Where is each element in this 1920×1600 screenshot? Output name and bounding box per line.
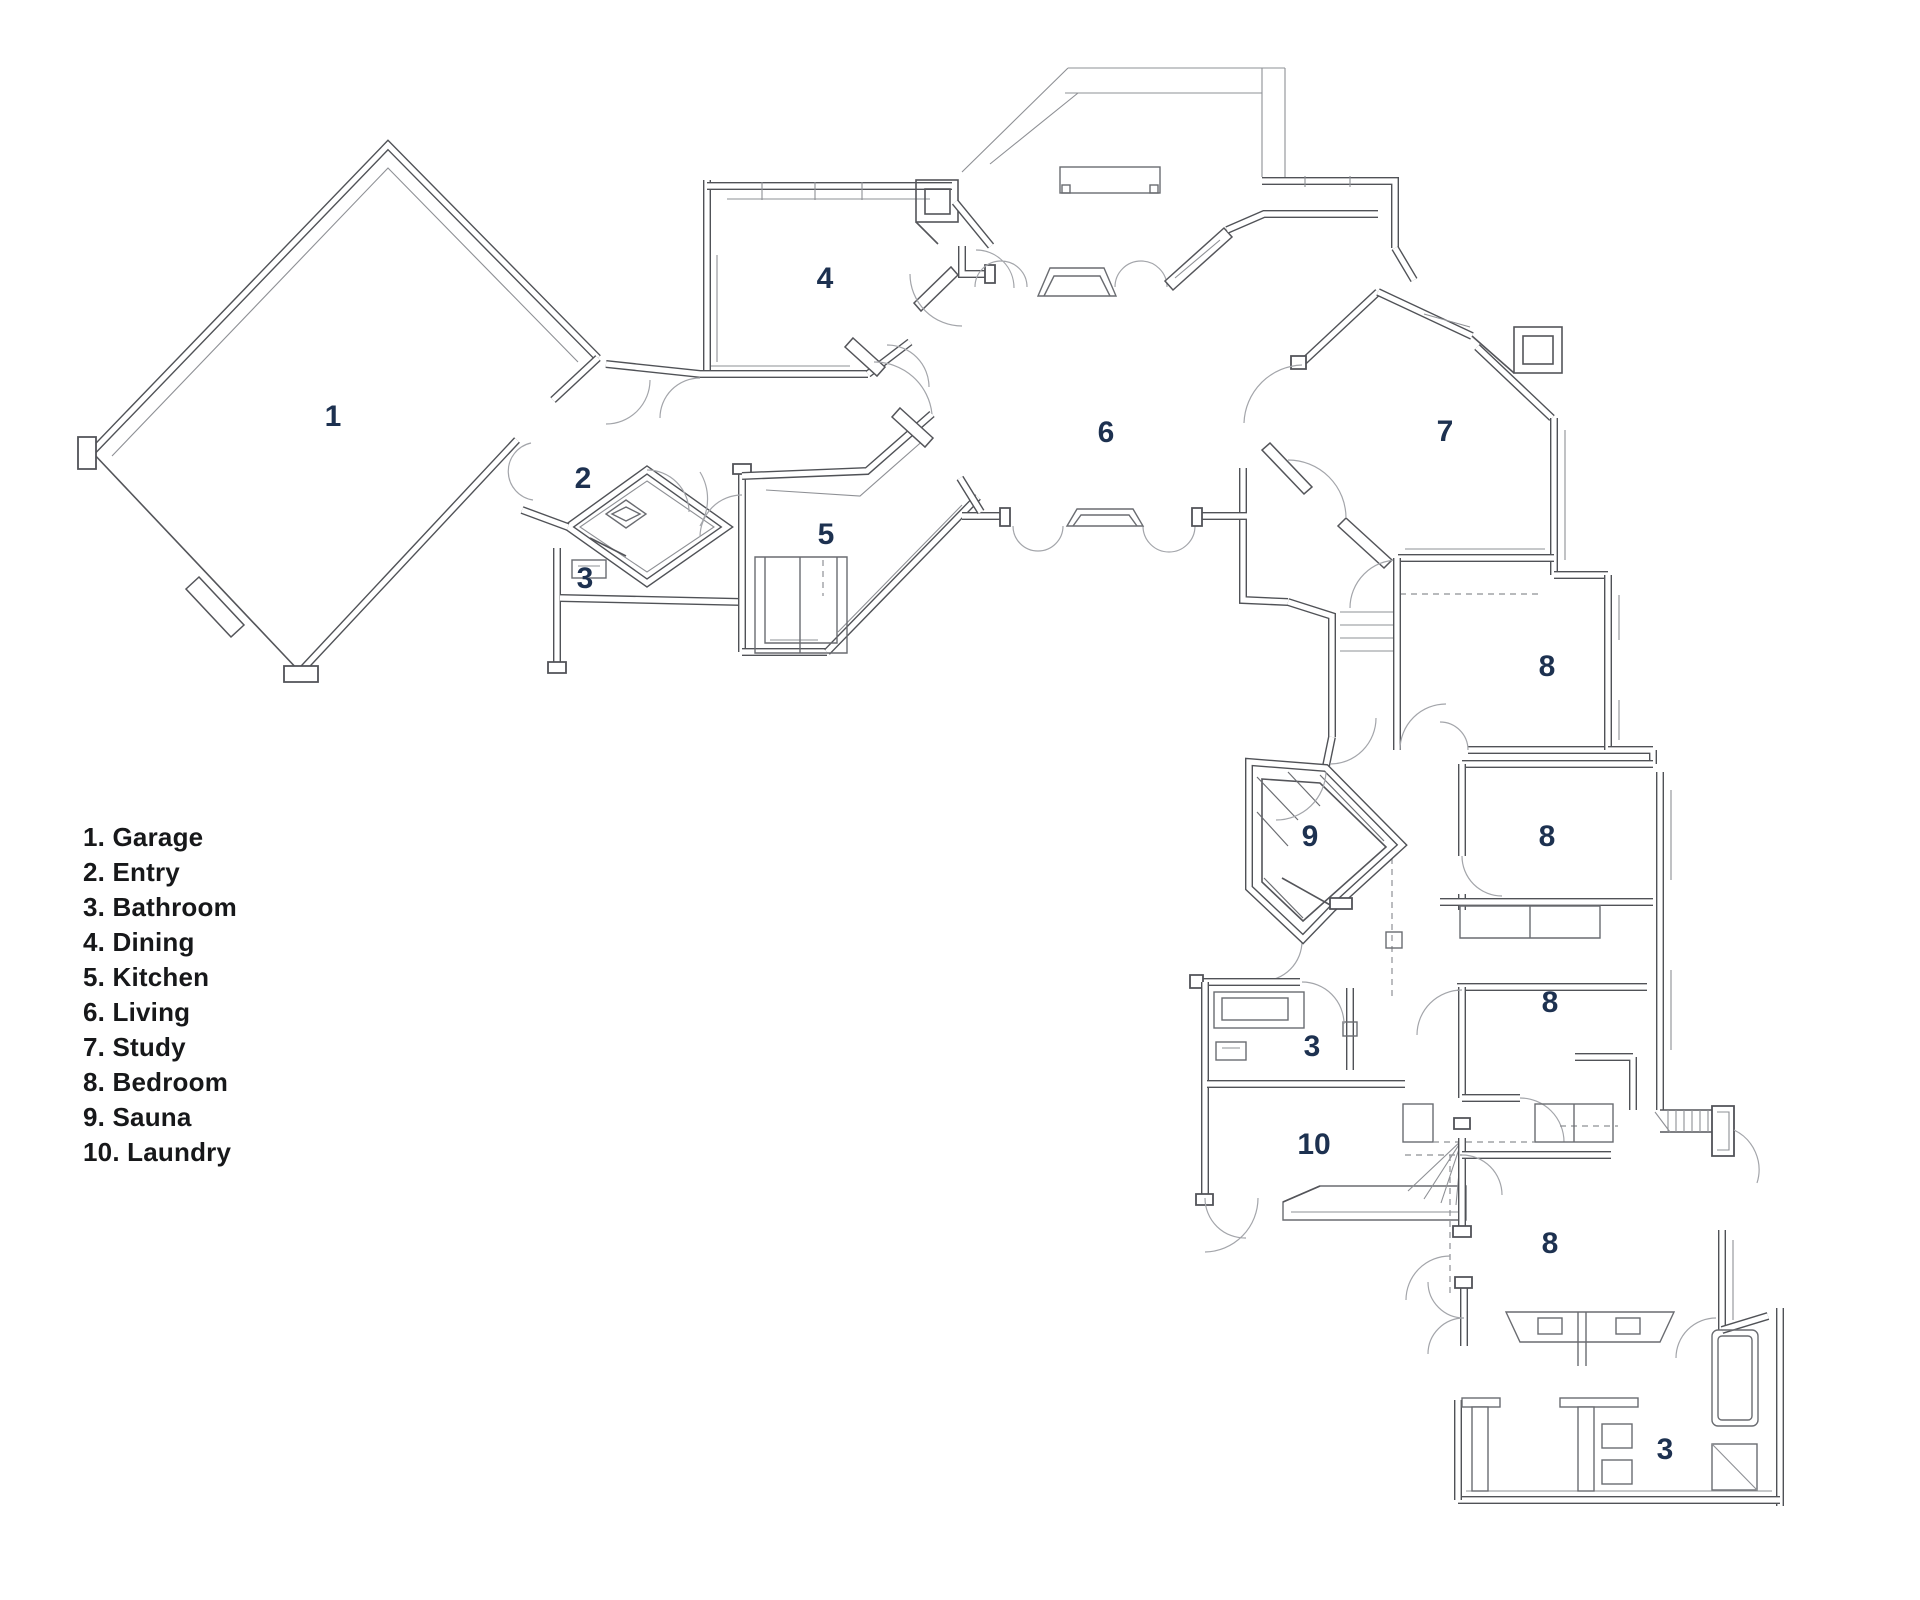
legend-item-garage: 1. Garage [83, 820, 237, 855]
legend-item-bedroom: 8. Bedroom [83, 1065, 237, 1100]
floor-plan-drawing: 1 2 3 4 5 6 7 8 8 9 8 3 10 8 3 [0, 0, 1920, 1600]
room-study [1244, 292, 1565, 608]
legend-item-bathroom: 3. Bathroom [83, 890, 237, 925]
legend-item-dining: 4. Dining [83, 925, 237, 960]
stairs [1655, 1106, 1759, 1183]
room-label-sauna: 9 [1302, 820, 1319, 853]
floor-plan-page: 1 2 3 4 5 6 7 8 8 9 8 3 10 8 3 1. Garage… [0, 0, 1920, 1600]
room-label-study: 7 [1437, 415, 1454, 448]
legend-item-study: 7. Study [83, 1030, 237, 1065]
room-label-laundry: 10 [1297, 1128, 1330, 1161]
room-entry-and-bath [522, 364, 857, 673]
legend-item-entry: 2. Entry [83, 855, 237, 890]
legend: 1. Garage 2. Entry 3. Bathroom 4. Dining… [83, 820, 237, 1170]
room-label-entry: 2 [575, 462, 592, 495]
room-kitchen [700, 362, 978, 653]
room-label-dining: 4 [817, 262, 834, 295]
terrace [962, 68, 1414, 280]
room-label-bedroom-3: 8 [1542, 986, 1559, 1019]
room-living [960, 214, 1394, 766]
room-label-kitchen: 5 [818, 518, 835, 551]
room-label-bathroom-master: 3 [1657, 1433, 1674, 1466]
room-label-bedroom-2: 8 [1539, 820, 1556, 853]
room-label-bathroom-entry: 3 [577, 562, 594, 595]
room-label-garage: 1 [325, 400, 342, 433]
room-label-bedroom-4: 8 [1542, 1227, 1559, 1260]
room-label-bedroom-1: 8 [1539, 650, 1556, 683]
room-label-living: 6 [1098, 416, 1115, 449]
room-bathroom-master [1428, 1277, 1780, 1506]
legend-item-sauna: 9. Sauna [83, 1100, 237, 1135]
room-label-bathroom-mid: 3 [1304, 1030, 1321, 1063]
legend-item-laundry: 10. Laundry [83, 1135, 237, 1170]
legend-item-kitchen: 5. Kitchen [83, 960, 237, 995]
room-dining [701, 180, 995, 387]
room-bathroom-mid [1190, 975, 1405, 1205]
room-bedroom-1 [1397, 558, 1653, 764]
legend-item-living: 6. Living [83, 995, 237, 1030]
